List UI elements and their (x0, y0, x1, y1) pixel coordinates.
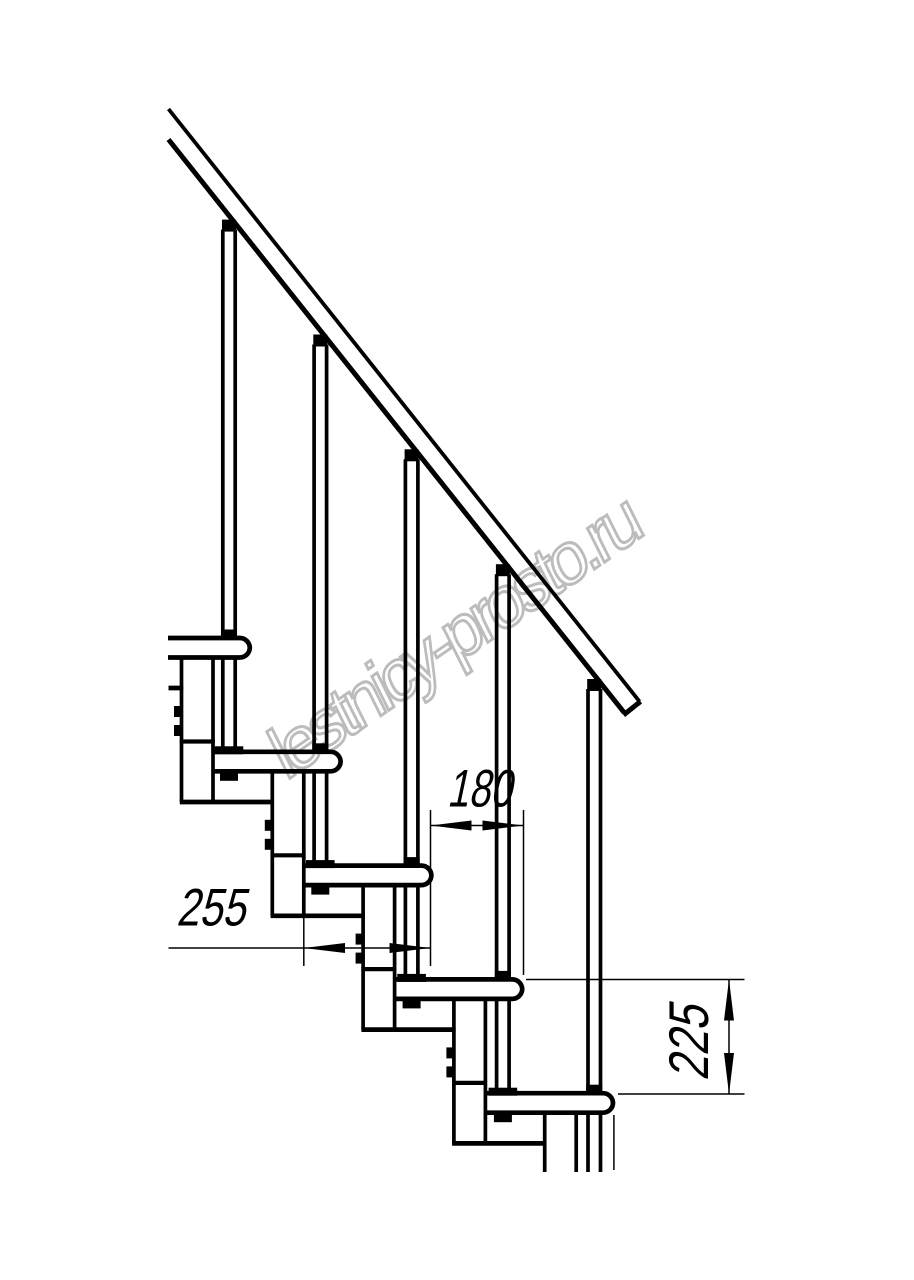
svg-text:180: 180 (444, 760, 521, 819)
svg-text:255: 255 (173, 879, 255, 938)
svg-text:225: 225 (657, 995, 720, 1084)
